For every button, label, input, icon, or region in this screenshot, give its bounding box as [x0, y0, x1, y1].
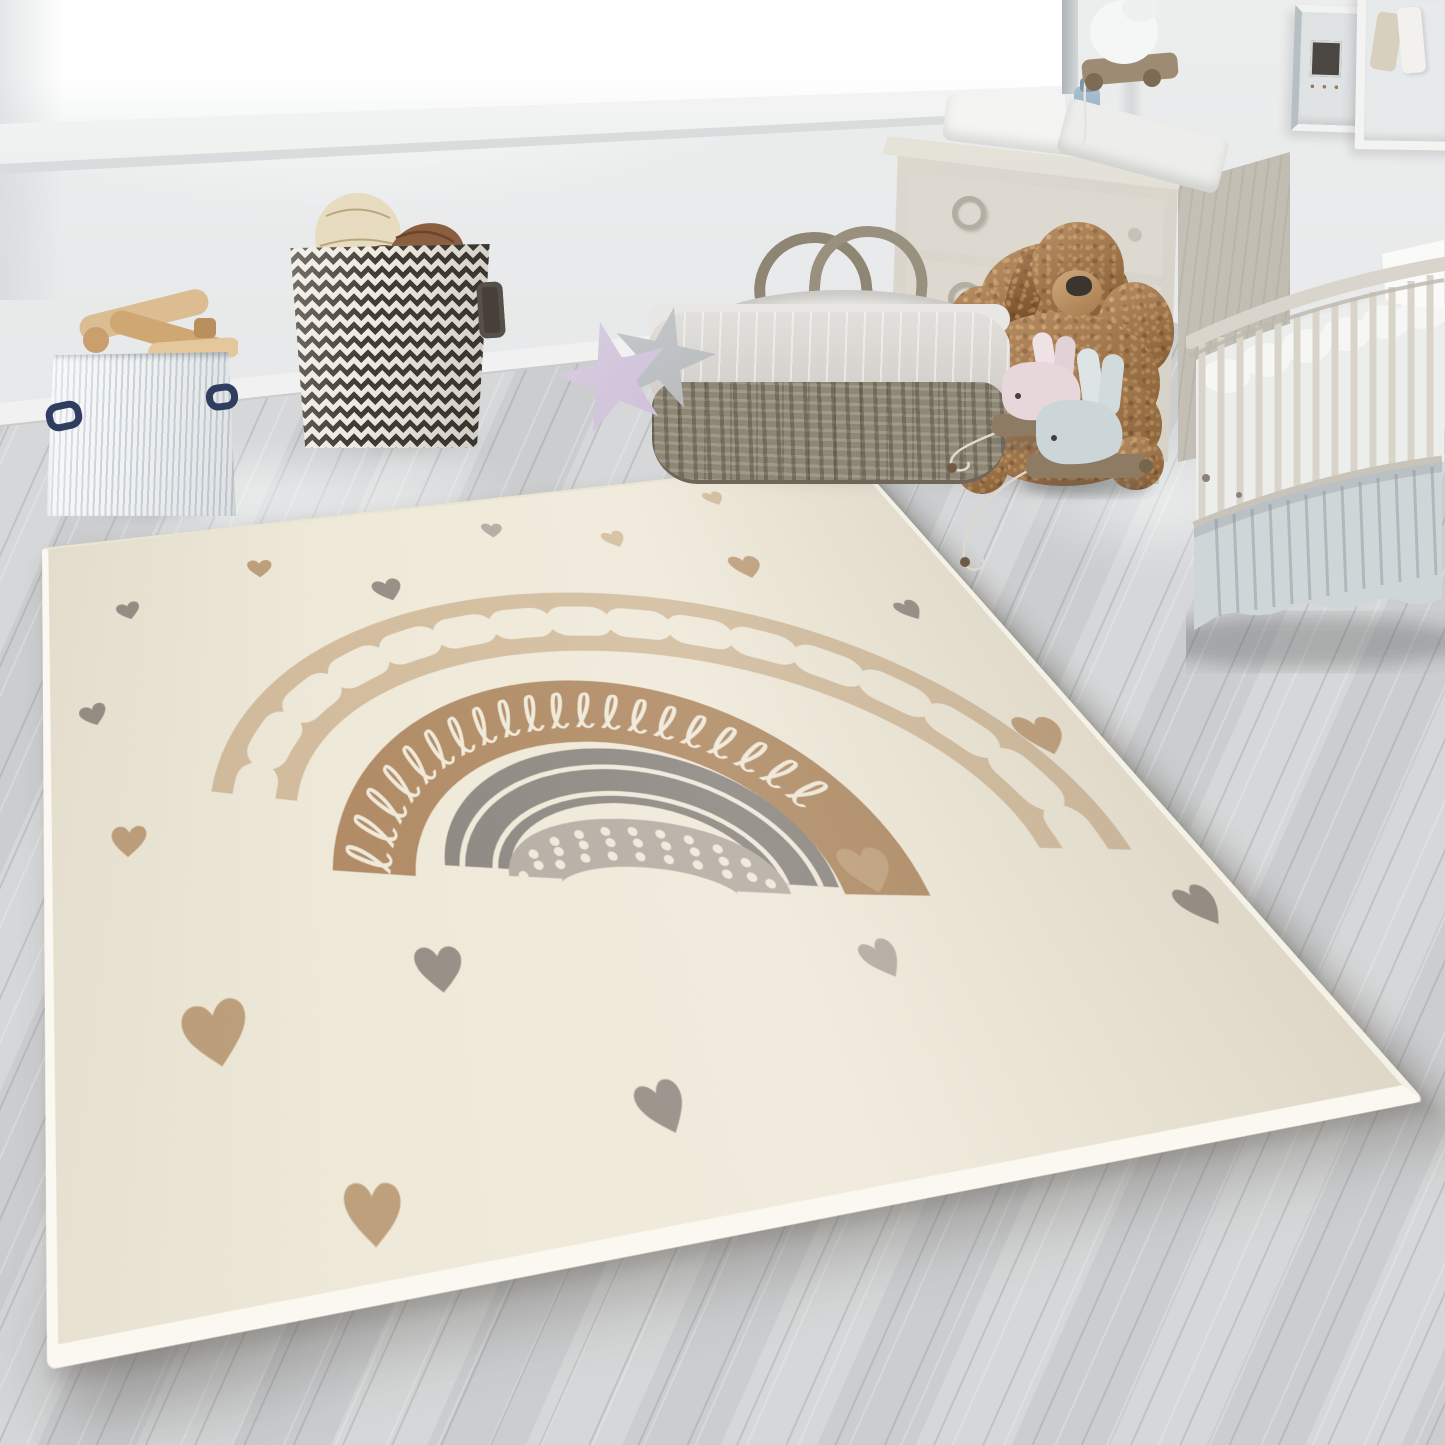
- chevron-basket-body: [284, 244, 496, 448]
- wooden-toy-block: [194, 318, 216, 338]
- shadow-box-frame-large: [1355, 0, 1445, 151]
- framed-baby-cloth-white: [1397, 6, 1427, 74]
- window-right-frame: [1062, 0, 1078, 94]
- striped-toy-box: [46, 280, 242, 520]
- pull-string: [951, 432, 998, 470]
- chevron-basket: [278, 184, 502, 460]
- chevron-basket-handle: [476, 281, 506, 339]
- nursery-room-photo: ℓℓℓℓℓℓℓℓℓℓℓℓℓℓℓℓℓℓℓℓ: [0, 0, 1445, 1445]
- toy-wheel: [1143, 69, 1161, 87]
- wood-bead: [1236, 492, 1242, 498]
- striped-box-handle-right: [204, 382, 239, 412]
- toy-wheel: [1085, 73, 1103, 91]
- wood-bead: [1202, 474, 1210, 482]
- whale-eye: [1015, 393, 1021, 399]
- whale-pull-toys: [918, 318, 1180, 618]
- sill-pull-toy: [1078, 0, 1190, 170]
- striped-box-body: [46, 352, 236, 516]
- rainbow-motif: ℓℓℓℓℓℓℓℓℓℓℓℓℓℓℓℓℓℓℓℓ: [230, 579, 1098, 991]
- wooden-toy-disc: [83, 327, 109, 353]
- pull-string: [964, 470, 1030, 570]
- round-crib: [1186, 210, 1445, 680]
- string-bead: [960, 557, 970, 567]
- string-bead: [947, 463, 957, 473]
- frame-dots: [1307, 82, 1341, 91]
- frame-card: [1310, 40, 1342, 77]
- whale-body: [1036, 400, 1123, 464]
- crib-floor-shadow: [1186, 616, 1445, 668]
- sled-knob: [1139, 459, 1153, 473]
- whale-eye: [1051, 435, 1057, 441]
